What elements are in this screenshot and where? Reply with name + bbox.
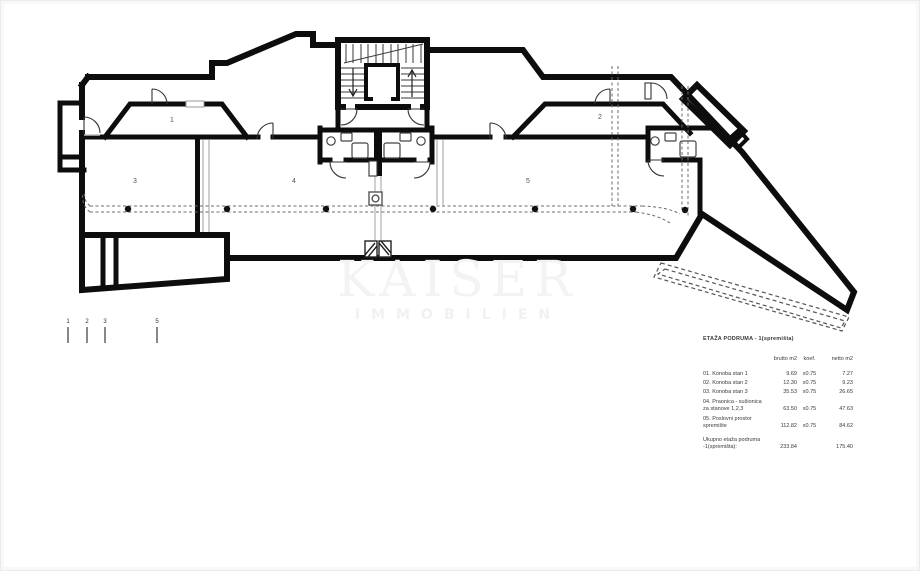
row-name-line2: spremište	[703, 423, 766, 430]
table-total: Ukupno etaža podruma -1(spremišta): 233.…	[703, 437, 853, 452]
row-netto: 84.62	[822, 423, 853, 430]
header-brutto: brutto m2	[767, 356, 797, 363]
room-label-5: 5	[526, 178, 530, 185]
row-name: Poslovni prostor	[712, 416, 751, 422]
table-row: 01. Konoba stan 1 9.69 x0.75 7.27	[703, 371, 853, 378]
wall-room3-room4	[195, 137, 200, 235]
row-no: 01.	[703, 371, 711, 377]
section-markers: 1 2 3 5	[66, 319, 159, 343]
table-row: 03. Konoba stan 3 35.53 x0.75 26.65	[703, 389, 853, 396]
row-netto: 7.27	[822, 371, 853, 378]
table-row: 05. Poslovni prostorspremište 112.82 x0.…	[703, 416, 853, 431]
row-brutto: 63.50	[767, 406, 797, 413]
section-mark-ticks	[68, 327, 157, 343]
total-label-line2: -1(spremišta):	[703, 444, 766, 451]
row-brutto: 35.53	[767, 389, 797, 396]
header-netto: netto m2	[822, 356, 853, 363]
row-name: Praonica - sušionica	[712, 399, 762, 405]
ne-exterior-stair	[683, 85, 747, 148]
table-header-row: brutto m2 koef. netto m2	[703, 356, 853, 363]
elevator-door-opening	[373, 97, 391, 101]
table-row: 02. Konoba stan 2 12.30 x0.75 9.23	[703, 380, 853, 387]
row-koef: x0.75	[798, 389, 821, 396]
window-room1	[186, 101, 204, 107]
row-koef: x0.75	[798, 423, 821, 430]
total-brutto: 233.84	[767, 444, 797, 451]
area-table: ETAŽA PODRUMA - 1(spremišta) brutto m2 k…	[703, 336, 853, 454]
stairwell	[338, 40, 427, 107]
roof-outline-dashed	[654, 263, 849, 331]
row-name: Konoba stan 2	[712, 380, 747, 386]
section-mark-label: 3	[103, 319, 107, 325]
table-row: 04. Praonica - sušionicaza stanove 1,2,3…	[703, 399, 853, 414]
row-koef: x0.75	[798, 380, 821, 387]
row-brutto: 12.30	[767, 380, 797, 387]
row-brutto: 9.69	[767, 371, 797, 378]
section-mark-label: 2	[85, 319, 89, 325]
row-no: 05.	[703, 416, 711, 422]
room-label-3: 3	[133, 178, 137, 185]
basement-floor-plan: 1 2 3 4 5 1 2 3 5	[0, 0, 920, 571]
section-mark-label: 5	[155, 319, 159, 325]
table-title: ETAŽA PODRUMA - 1(spremišta)	[703, 336, 853, 343]
room-label-2: 2	[598, 114, 602, 121]
interior-walls	[82, 104, 712, 214]
hatched-shaft	[365, 176, 391, 257]
row-name: Konoba stan 3	[712, 389, 747, 395]
row-name-line2: za stanove 1,2,3	[703, 406, 766, 413]
floor-plan-page: 1 2 3 4 5 1 2 3 5 KAISER IMMOBILIEN ETAŽ…	[0, 0, 920, 571]
row-netto: 9.23	[822, 380, 853, 387]
row-name: Konoba stan 1	[712, 371, 747, 377]
row-no: 04.	[703, 399, 711, 405]
room-label-1: 1	[170, 117, 174, 124]
row-koef: x0.75	[798, 371, 821, 378]
row-netto: 47.63	[822, 406, 853, 413]
total-netto: 175.40	[822, 444, 853, 451]
row-brutto: 112.82	[767, 423, 797, 430]
row-koef: x0.75	[798, 406, 821, 413]
room-label-4: 4	[292, 178, 296, 185]
row-no: 03.	[703, 389, 711, 395]
header-koef: koef.	[798, 356, 821, 363]
row-netto: 26.65	[822, 389, 853, 396]
elevator-shaft	[366, 65, 398, 99]
row-no: 02.	[703, 380, 711, 386]
total-label-line1: Ukupno etaža podruma	[703, 437, 760, 443]
section-mark-label: 1	[66, 319, 70, 325]
